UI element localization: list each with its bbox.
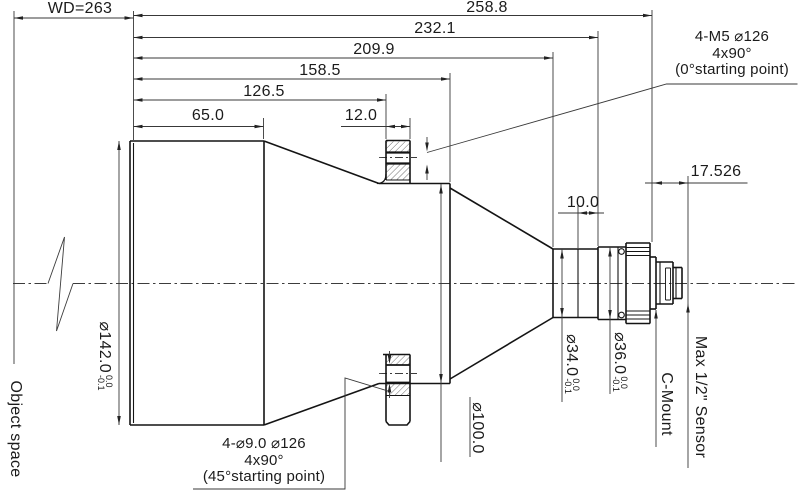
dim-258-8: 258.8: [452, 0, 522, 15]
note-d9-holes: 4-⌀9.0 ⌀126 4x90° (45°starting point): [178, 436, 350, 486]
dim-working-distance: WD=263: [30, 1, 130, 16]
dim-126-5: 126.5: [232, 84, 296, 99]
note-d9-line3: (45°starting point): [178, 469, 350, 486]
note-m5-line3: (0°starting point): [646, 62, 800, 79]
dim-158-5: 158.5: [288, 63, 352, 78]
dim-diameter-36-value: ⌀36.0: [610, 332, 630, 374]
note-m5-line2: 4x90°: [646, 46, 800, 63]
dim-232-1: 232.1: [402, 21, 468, 36]
label-c-mount: C-Mount: [656, 360, 676, 448]
dim-diameter-34-tolerance: 0.0-0.1: [564, 378, 581, 394]
lens-body-outline: [130, 141, 682, 426]
dim-diameter-142-tolerance: 0.0-0.1: [97, 375, 114, 391]
break-symbol: [48, 237, 73, 331]
lens-mechanical-drawing: WD=263 258.8 232.1 209.9 158.5 126.5 65.…: [0, 0, 800, 496]
dim-12-0: 12.0: [338, 108, 384, 123]
label-max-sensor: Max 1/2" Sensor: [690, 327, 710, 467]
dim-diameter-100: ⌀100.0: [468, 397, 488, 459]
dim-diameter-142: ⌀142.0 0.0-0.1: [95, 312, 115, 400]
note-d9-line1: 4-⌀9.0 ⌀126: [178, 436, 350, 453]
dim-diameter-34: ⌀34.0 0.0-0.1: [562, 326, 582, 402]
label-object-space: Object space: [5, 368, 25, 490]
dim-diameter-36: ⌀36.0 0.0-0.1: [610, 329, 630, 395]
note-d9-line2: 4x90°: [178, 453, 350, 470]
note-m5-holes: 4-M5 ⌀126 4x90° (0°starting point): [646, 29, 800, 79]
dimension-lines: [14, 16, 748, 463]
dim-17-526: 17.526: [682, 164, 750, 179]
dim-diameter-100-value: ⌀100.0: [468, 402, 488, 453]
dim-diameter-34-value: ⌀34.0: [562, 334, 582, 376]
dim-10-0: 10.0: [558, 195, 608, 210]
dim-65-0: 65.0: [183, 108, 233, 123]
dim-209-9: 209.9: [342, 42, 406, 57]
dim-diameter-142-value: ⌀142.0: [95, 322, 115, 373]
dim-diameter-36-tolerance: 0.0-0.1: [612, 376, 629, 392]
note-m5-line1: 4-M5 ⌀126: [646, 29, 800, 46]
